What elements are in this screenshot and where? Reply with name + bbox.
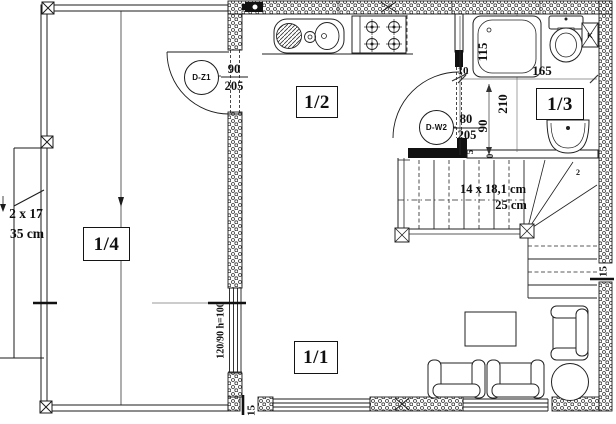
door-tag-dz1: D-Z1 [184,60,219,95]
window-size-label: 120/90 h=100 [215,288,228,374]
dim-step-b: 0 [485,148,495,164]
dim-tub-length: 115 [475,36,489,68]
room-label-porch: 1/4 [83,227,130,261]
room-label-bathroom: 1/3 [536,88,584,120]
bathroom-sink [547,120,589,153]
stairs-dimensions-label: 14 x 18,1 cm [452,182,534,197]
kitchen-sink [274,19,344,53]
dim-wall-thickness: 10 [452,65,474,78]
room-label-kitchen-hall: 1/2 [296,86,338,118]
dim-door-clearance: 90 [475,108,489,144]
vent-letter: K [584,30,596,41]
armchair-right [487,360,544,398]
floor-plan: 1/2 1/3 1/1 1/4 D-Z1 90 205 D-W2 80 205 … [0,0,616,424]
window-bottom-left [273,399,370,411]
door-dz1-height: 205 [218,78,250,94]
round-table [552,364,589,401]
window-bottom-right [463,399,548,411]
dim-insulation-right: 15 [598,260,611,284]
vent-symbol [242,2,263,12]
armchair-left [428,360,485,398]
exterior-steps-dimensions: 2 x 17 [4,205,48,223]
dim-insulation-bottom: 15 [246,399,259,423]
armchair-side [551,306,588,360]
room-label-living: 1/1 [294,341,338,374]
exterior-steps [0,148,44,358]
door-dz1-width: 90 [220,61,248,77]
exterior-steps-tread: 35 cm [4,225,50,243]
toilet [549,16,583,62]
dim-bath-width: 165 [524,63,560,78]
door-tag-dw2: D-W2 [419,110,454,145]
stairs-note: 2 [573,167,583,178]
kitchen-stove [352,16,406,53]
wall-marks [381,2,409,410]
dim-hall-depth: 210 [495,86,509,122]
stairs-tread-label: 25 cm [490,198,532,213]
coffee-table [465,312,516,346]
window-mid-wall [228,288,242,372]
staircase [395,158,597,298]
dim-step-a: 5 [465,144,475,160]
